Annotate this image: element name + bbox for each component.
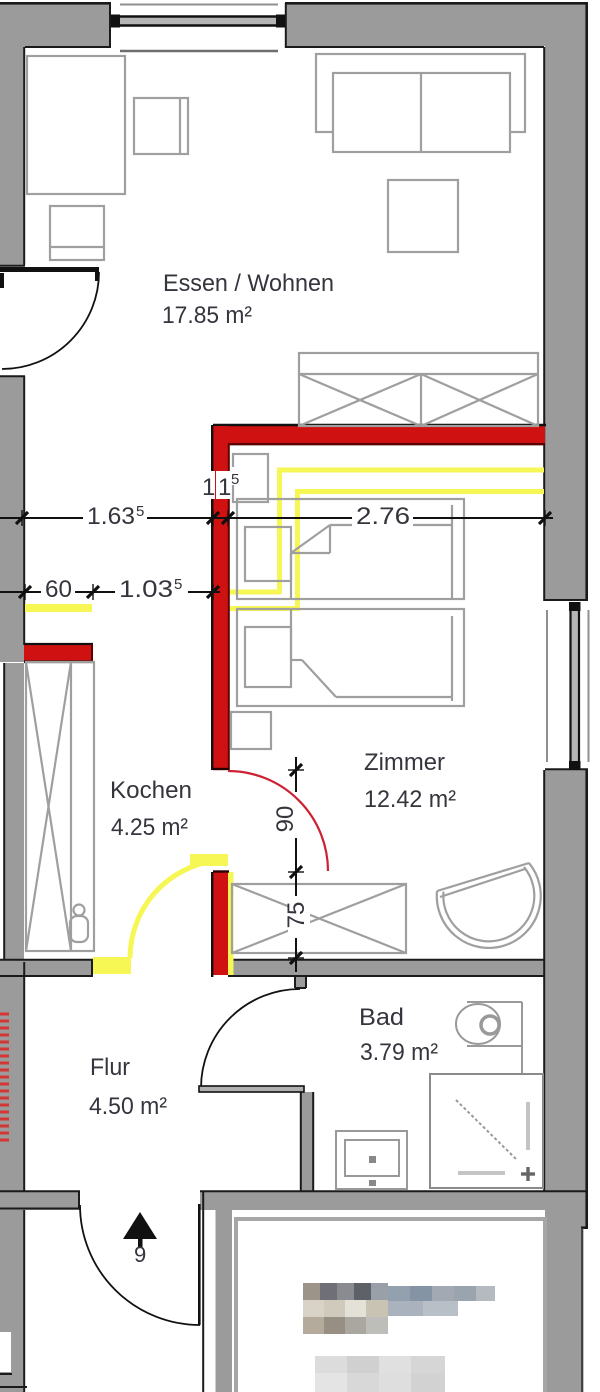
svg-text:1: 1	[218, 474, 231, 501]
svg-text:5: 5	[231, 471, 239, 488]
svg-text:12.42 m²: 12.42 m²	[364, 786, 456, 813]
svg-text:5: 5	[174, 576, 182, 593]
svg-text:90: 90	[272, 806, 299, 833]
svg-text:4.50 m²: 4.50 m²	[89, 1093, 167, 1120]
svg-text:Bad: Bad	[359, 1004, 404, 1031]
svg-text:1: 1	[202, 474, 215, 501]
svg-text:Kochen: Kochen	[110, 777, 192, 804]
svg-text:60: 60	[45, 576, 72, 603]
svg-text:Zimmer: Zimmer	[364, 749, 445, 776]
svg-text:Essen / Wohnen: Essen / Wohnen	[163, 270, 334, 297]
svg-text:1.03: 1.03	[119, 576, 173, 603]
svg-text:9: 9	[134, 1242, 146, 1267]
svg-text:2.76: 2.76	[356, 503, 410, 530]
svg-text:17.85 m²: 17.85 m²	[162, 302, 252, 329]
svg-text:3.79 m²: 3.79 m²	[360, 1039, 438, 1066]
svg-text:75: 75	[283, 902, 310, 929]
svg-text:1.63: 1.63	[87, 503, 135, 530]
svg-text:Flur: Flur	[90, 1054, 130, 1081]
svg-text:5: 5	[136, 503, 144, 520]
svg-text:4.25 m²: 4.25 m²	[111, 814, 188, 841]
